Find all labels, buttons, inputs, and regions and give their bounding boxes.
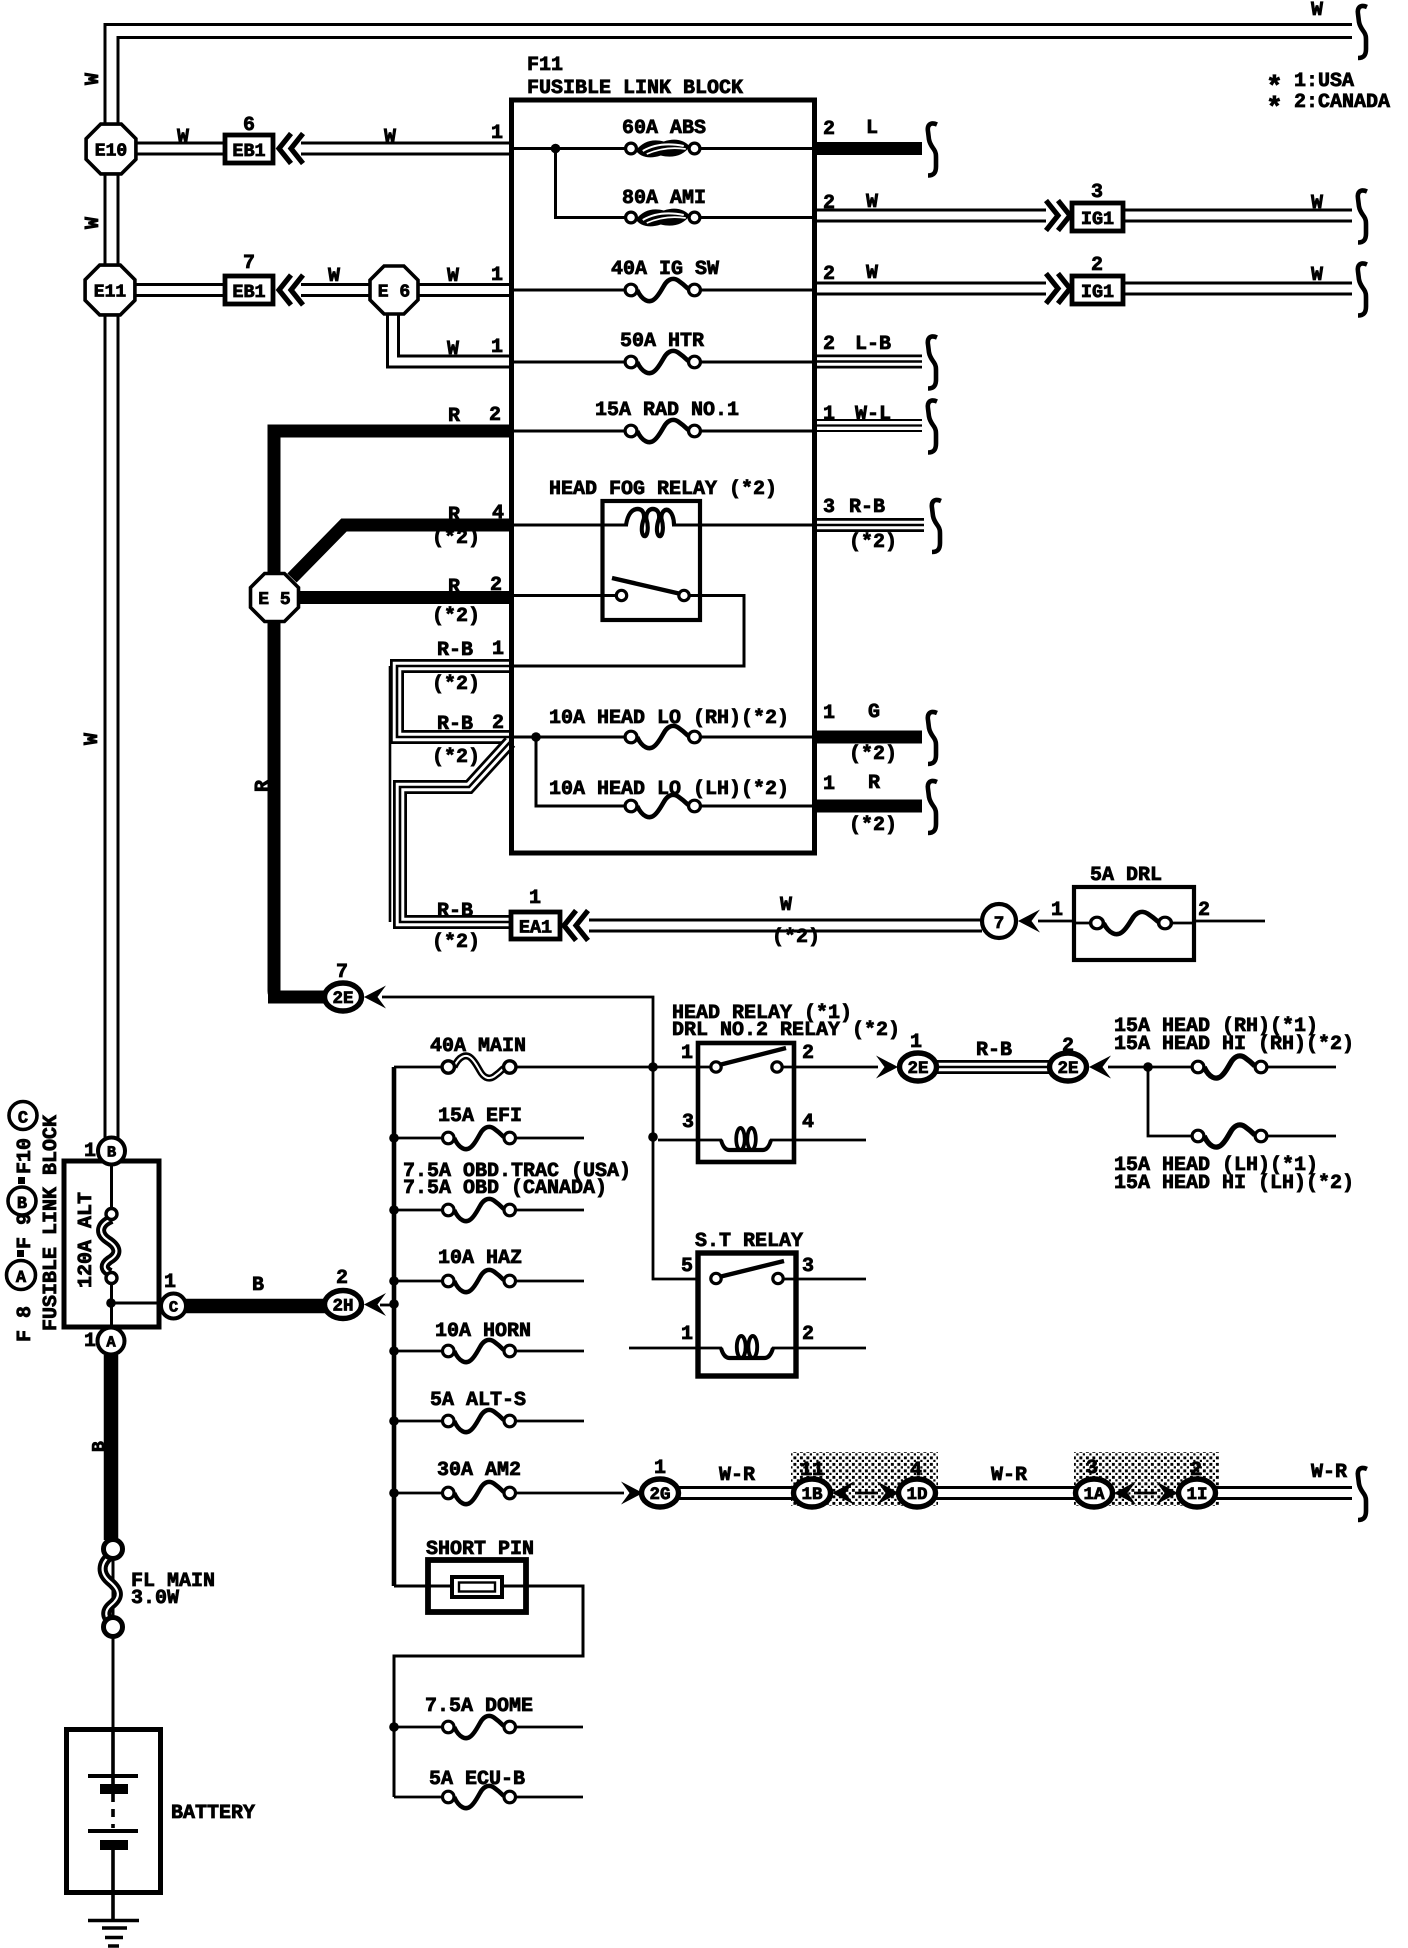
svg-text:50A HTR: 50A HTR xyxy=(620,330,704,353)
svg-text:1I: 1I xyxy=(1186,1485,1207,1505)
svg-text:7.5A DOME: 7.5A DOME xyxy=(425,1695,533,1718)
svg-text:E 5: E 5 xyxy=(258,590,290,610)
svg-text:R-B: R-B xyxy=(849,496,885,519)
svg-text:2: 2 xyxy=(1190,1459,1202,1482)
svg-text:5A ALT-S: 5A ALT-S xyxy=(430,1389,526,1412)
svg-text:BATTERY: BATTERY xyxy=(171,1802,255,1825)
svg-text:FUSIBLE LINK BLOCK: FUSIBLE LINK BLOCK xyxy=(527,77,743,100)
svg-text:3.0W: 3.0W xyxy=(131,1587,179,1610)
svg-text:2: 2 xyxy=(823,118,835,141)
svg-text:A: A xyxy=(16,1269,27,1288)
svg-text:(*2): (*2) xyxy=(772,926,820,949)
svg-text:F 9: F 9 xyxy=(14,1213,37,1249)
svg-text:E11: E11 xyxy=(94,283,127,303)
svg-text:L-B: L-B xyxy=(855,333,891,356)
svg-text:1: 1 xyxy=(681,1042,693,1065)
svg-text:1: 1 xyxy=(654,1457,666,1480)
svg-text:F10: F10 xyxy=(14,1138,37,1174)
svg-text:(*2): (*2) xyxy=(849,531,897,554)
svg-text:4: 4 xyxy=(910,1459,922,1482)
svg-text:W: W xyxy=(866,191,878,214)
svg-text:1B: 1B xyxy=(801,1485,823,1505)
svg-text:E10: E10 xyxy=(95,142,127,162)
svg-text:1: 1 xyxy=(681,1323,693,1346)
svg-text:W: W xyxy=(82,73,105,85)
svg-text:15A HEAD HI (LH)(*2): 15A HEAD HI (LH)(*2) xyxy=(1114,1172,1354,1195)
svg-text:W-R: W-R xyxy=(719,1464,755,1487)
svg-text:2: 2 xyxy=(490,574,502,597)
svg-text:2: 2 xyxy=(802,1323,814,1346)
svg-text:1: 1 xyxy=(823,702,835,725)
svg-text:R-B: R-B xyxy=(976,1039,1012,1062)
svg-text:2: 2 xyxy=(489,404,501,427)
svg-text:C: C xyxy=(18,1110,28,1129)
svg-text:B: B xyxy=(90,1441,110,1452)
svg-text:15A RAD NO.1: 15A RAD NO.1 xyxy=(595,399,739,422)
svg-text:2:CANADA: 2:CANADA xyxy=(1294,91,1390,114)
svg-text:1: 1 xyxy=(910,1031,922,1054)
svg-text:EB1: EB1 xyxy=(232,141,265,162)
svg-text:A: A xyxy=(106,1334,116,1352)
svg-text:E 6: E 6 xyxy=(378,283,410,303)
svg-text:3: 3 xyxy=(682,1111,694,1134)
svg-text:W: W xyxy=(866,262,878,285)
svg-text:(*2): (*2) xyxy=(432,931,480,954)
svg-text:W-R: W-R xyxy=(991,1464,1027,1487)
svg-text:1: 1 xyxy=(492,638,504,661)
svg-text:R-B: R-B xyxy=(437,639,473,662)
svg-text:3: 3 xyxy=(1086,1457,1098,1480)
svg-text:1D: 1D xyxy=(906,1485,927,1505)
svg-text:5A DRL: 5A DRL xyxy=(1090,864,1162,887)
svg-text:1: 1 xyxy=(491,264,503,287)
svg-text:R-B: R-B xyxy=(437,713,473,736)
svg-text:DRL NO.2 RELAY (*2): DRL NO.2 RELAY (*2) xyxy=(672,1019,900,1042)
svg-text:120A ALT: 120A ALT xyxy=(75,1192,98,1288)
svg-text:2: 2 xyxy=(823,192,835,215)
svg-text:2: 2 xyxy=(1091,254,1103,277)
svg-text:2: 2 xyxy=(492,712,504,735)
svg-text:7: 7 xyxy=(243,252,255,275)
svg-text:3: 3 xyxy=(1091,181,1103,204)
svg-text:2G: 2G xyxy=(649,1485,670,1505)
svg-text:10A HORN: 10A HORN xyxy=(435,1320,531,1343)
svg-text:B: B xyxy=(17,1195,27,1214)
svg-text:W: W xyxy=(447,338,459,361)
svg-text:(*2): (*2) xyxy=(432,605,480,628)
svg-text:IG1: IG1 xyxy=(1081,209,1114,230)
svg-text:B: B xyxy=(107,1144,116,1162)
svg-text:11: 11 xyxy=(800,1459,824,1482)
svg-text:2: 2 xyxy=(802,1042,814,1065)
svg-text:10A HAZ: 10A HAZ xyxy=(438,1247,522,1270)
svg-text:W: W xyxy=(1311,0,1323,22)
svg-text:W-R: W-R xyxy=(1311,1461,1347,1484)
svg-text:R: R xyxy=(448,405,460,428)
svg-text:1: 1 xyxy=(491,336,503,359)
svg-text:1: 1 xyxy=(164,1271,176,1294)
svg-text:R-B: R-B xyxy=(437,900,473,923)
svg-text:2: 2 xyxy=(336,1267,348,1290)
svg-text:W: W xyxy=(384,126,396,149)
svg-text:B: B xyxy=(252,1274,264,1297)
svg-text:2E: 2E xyxy=(1057,1059,1078,1079)
svg-text:2: 2 xyxy=(823,333,835,356)
svg-text:60A ABS: 60A ABS xyxy=(622,117,706,140)
svg-text:5: 5 xyxy=(681,1255,693,1278)
svg-text:SHORT PIN: SHORT PIN xyxy=(426,1538,534,1561)
svg-text:R: R xyxy=(448,576,460,599)
svg-text:G: G xyxy=(868,701,880,724)
svg-text:3: 3 xyxy=(802,1255,814,1278)
svg-text:HEAD FOG RELAY (*2): HEAD FOG RELAY (*2) xyxy=(549,478,777,501)
svg-text:1A: 1A xyxy=(1083,1485,1105,1505)
svg-text:(*2): (*2) xyxy=(849,743,897,766)
svg-text:80A AMI: 80A AMI xyxy=(622,187,706,210)
svg-text:EB1: EB1 xyxy=(232,282,265,303)
svg-text:1: 1 xyxy=(84,1140,96,1163)
svg-text:7: 7 xyxy=(994,914,1005,934)
svg-text:10A HEAD LO (RH)(*2): 10A HEAD LO (RH)(*2) xyxy=(549,707,789,730)
svg-text:(*2): (*2) xyxy=(432,746,480,769)
svg-text:(*2): (*2) xyxy=(432,527,480,550)
svg-text:W: W xyxy=(81,733,104,745)
svg-text:2E: 2E xyxy=(907,1059,928,1079)
svg-text:4: 4 xyxy=(802,1111,814,1134)
svg-text:W: W xyxy=(1311,192,1323,215)
svg-text:1: 1 xyxy=(529,887,541,910)
svg-text:2H: 2H xyxy=(332,1297,353,1317)
svg-text:W: W xyxy=(82,217,105,229)
svg-text:7.5A OBD (CANADA): 7.5A OBD (CANADA) xyxy=(403,1177,607,1200)
svg-text:F 8: F 8 xyxy=(14,1306,37,1342)
svg-text:W: W xyxy=(177,126,189,149)
svg-text:1: 1 xyxy=(84,1330,96,1353)
svg-text:R: R xyxy=(252,780,275,792)
svg-text:(*2): (*2) xyxy=(432,673,480,696)
svg-text:C: C xyxy=(169,1299,178,1317)
svg-text:5A ECU-B: 5A ECU-B xyxy=(429,1768,525,1791)
svg-text:2: 2 xyxy=(1062,1035,1074,1058)
svg-text:EA1: EA1 xyxy=(519,918,552,939)
svg-text:1: 1 xyxy=(823,403,835,426)
svg-text:IG1: IG1 xyxy=(1081,282,1114,303)
svg-text:(*2): (*2) xyxy=(849,814,897,837)
svg-text:FUSIBLE LINK BLOCK: FUSIBLE LINK BLOCK xyxy=(40,1115,63,1331)
svg-text:2: 2 xyxy=(823,263,835,286)
svg-text:1: 1 xyxy=(491,122,503,145)
svg-text:R: R xyxy=(868,772,880,795)
svg-text:S.T RELAY: S.T RELAY xyxy=(695,1230,803,1253)
svg-text:2E: 2E xyxy=(332,989,353,1009)
svg-text:30A AM2: 30A AM2 xyxy=(437,1459,521,1482)
svg-text:W-L: W-L xyxy=(855,403,891,426)
svg-text:W: W xyxy=(328,265,340,288)
svg-text:1:USA: 1:USA xyxy=(1294,70,1354,93)
svg-text:1: 1 xyxy=(823,773,835,796)
svg-text:2: 2 xyxy=(1198,899,1210,922)
svg-text:F11: F11 xyxy=(527,54,563,77)
svg-text:3: 3 xyxy=(823,496,835,519)
svg-text:4: 4 xyxy=(492,502,504,525)
svg-text:7: 7 xyxy=(336,961,348,984)
svg-text:6: 6 xyxy=(243,114,255,137)
svg-text:40A IG SW: 40A IG SW xyxy=(611,258,719,281)
svg-text:L: L xyxy=(866,117,878,140)
svg-text:R: R xyxy=(448,504,460,527)
svg-text:1: 1 xyxy=(1051,899,1063,922)
svg-text:10A HEAD LO (LH)(*2): 10A HEAD LO (LH)(*2) xyxy=(549,778,789,801)
svg-text:W: W xyxy=(1311,264,1323,287)
svg-text:40A MAIN: 40A MAIN xyxy=(430,1035,526,1058)
svg-text:W: W xyxy=(780,894,792,917)
svg-text:W: W xyxy=(447,265,459,288)
svg-text:15A HEAD HI (RH)(*2): 15A HEAD HI (RH)(*2) xyxy=(1114,1033,1354,1056)
svg-text:*: * xyxy=(1266,94,1283,125)
svg-text:15A EFI: 15A EFI xyxy=(438,1105,522,1128)
